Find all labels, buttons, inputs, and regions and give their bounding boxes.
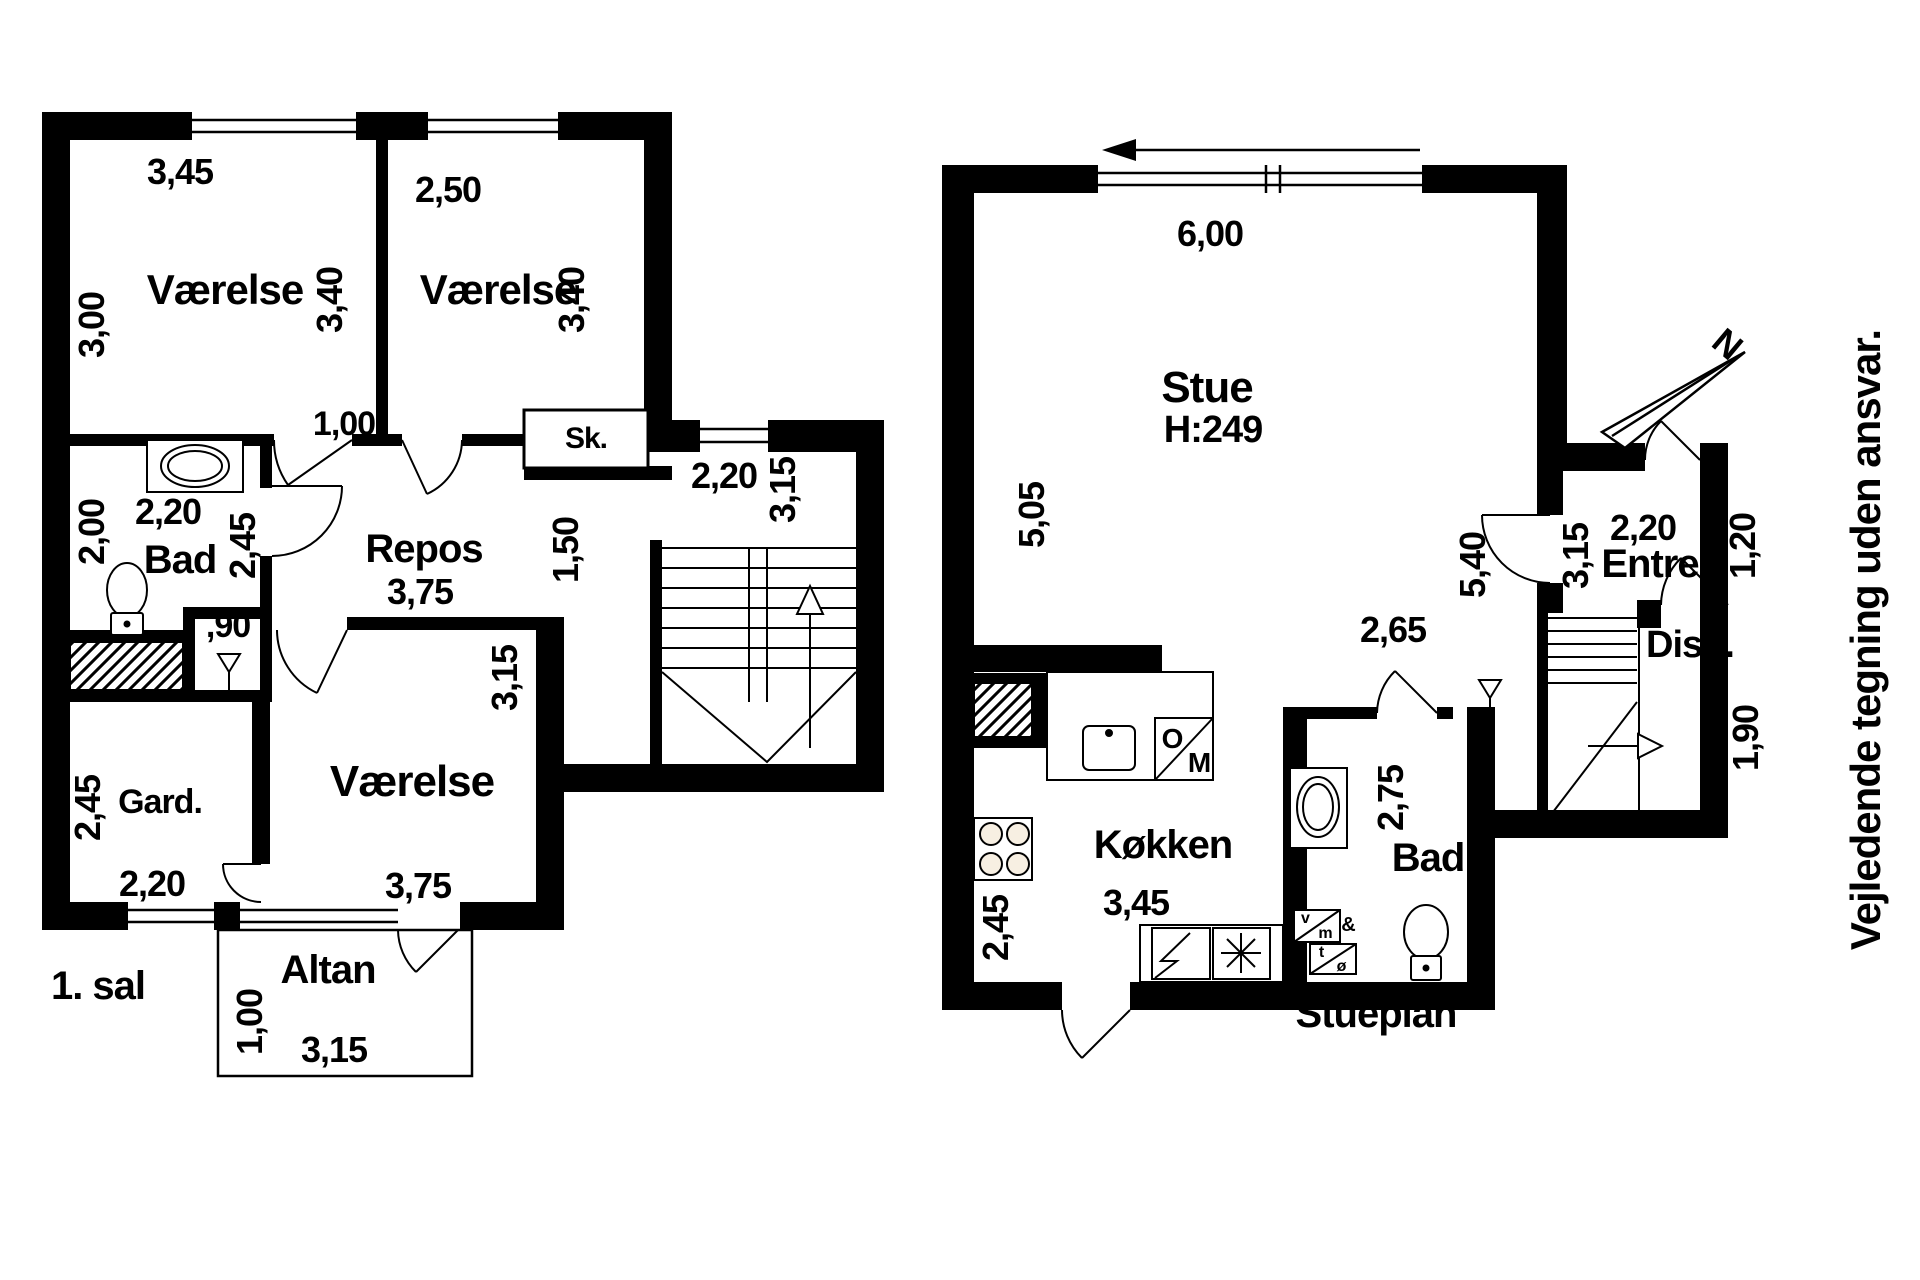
entre-width-dim: 2,20 [1610,510,1676,546]
closet-label: Sk. [565,424,607,454]
repos-label: Repos [365,529,482,569]
stair-width-dim: 2,20 [691,458,757,494]
floorplan-canvas [0,0,1920,1280]
ceiling-height-label: H:249 [1164,411,1263,449]
kitchen-label: Køkken [1094,825,1233,865]
disp-depth-dim: 1,90 [1728,705,1764,771]
room2-width-dim: 2,50 [415,172,481,208]
room1-right-dim: 3,40 [312,267,348,333]
bath2-depth-dim: 2,75 [1373,765,1409,831]
ground-floor-walls [942,165,1728,1010]
bath2-toilet-icon [1404,905,1448,980]
disclaimer-text: Vejledende tegning uden ansvar. [1845,330,1887,950]
room1-depth-dim: 3,00 [74,292,110,358]
bath2-sink-icon [1290,768,1347,848]
first-floor-stairs [662,548,856,762]
ground-floor-shaft [974,683,1032,737]
altan-depth-dim: 1,00 [232,989,268,1055]
bath1-left-dim: 2,00 [74,499,110,565]
entre-right-dim: 1,20 [1725,513,1761,579]
oven-letter-m: M [1188,749,1210,777]
ground-floor-fixtures [974,672,1501,982]
bath1-right-dim: 2,45 [225,513,261,579]
dryer-letter-t: t [1319,945,1323,961]
oven-letter-o: O [1162,725,1183,753]
appliance-counter [1140,925,1283,982]
stue-width-dim: 6,00 [1177,216,1243,252]
first-floor-shaft [70,642,183,690]
bath1-width-dim: 2,20 [135,494,201,530]
stue-label: Stue [1161,366,1252,410]
gard-width-dim: 2,20 [119,866,185,902]
stair-depth-dim: 3,15 [765,457,801,523]
niche-width-dim: ,90 [206,609,250,643]
ground-floor-stairs [1548,613,1662,838]
direction-arrow [1102,139,1420,161]
washer-amp: & [1341,915,1354,935]
kitchen-width-dim: 3,45 [1103,885,1169,921]
floorplan-page: 1. sal Stueplan Vejledende tegning uden … [0,0,1920,1280]
altan-label: Altan [281,950,376,990]
kitchen-depth-dim: 2,45 [978,895,1014,961]
room3-label: Værelse [330,760,494,804]
bath2-label: Bad [1392,838,1465,878]
repos-width-dim: 3,75 [387,574,453,610]
room3-width-dim: 3,75 [385,868,451,904]
dryer-letter-o: ø [1337,959,1346,975]
first-floor-title: 1. sal [51,966,145,1006]
gard-depth-dim: 2,45 [70,775,106,841]
antenna-icon [218,654,240,692]
stue-left-dim: 5,05 [1014,482,1050,548]
entre-label: Entre [1601,544,1698,584]
door-width-dim: 1,00 [313,407,375,441]
washer-letter-m: m [1318,926,1331,942]
gard-label: Gard. [118,785,202,819]
freezer-asterisk-icon [1221,933,1261,973]
room2-right-dim: 3,40 [554,267,590,333]
room1-width-dim: 3,45 [147,154,213,190]
stue-right-dim: 5,40 [1455,532,1491,598]
bath1-label: Bad [144,540,217,580]
bath2-width-dim: 2,65 [1360,612,1426,648]
disp-label: Disp. [1646,626,1734,664]
room3-right-dim: 3,15 [487,645,523,711]
corridor-dim: 1,50 [548,517,584,583]
toilet-icon [107,563,147,635]
room1-label: Værelse [147,269,303,311]
ground-floor-title: Stueplan [1296,994,1457,1034]
stove-icon [974,818,1032,880]
washer-letter-v: v [1301,911,1309,927]
entre-left-dim: 3,15 [1558,523,1594,589]
altan-width-dim: 3,15 [301,1032,367,1068]
